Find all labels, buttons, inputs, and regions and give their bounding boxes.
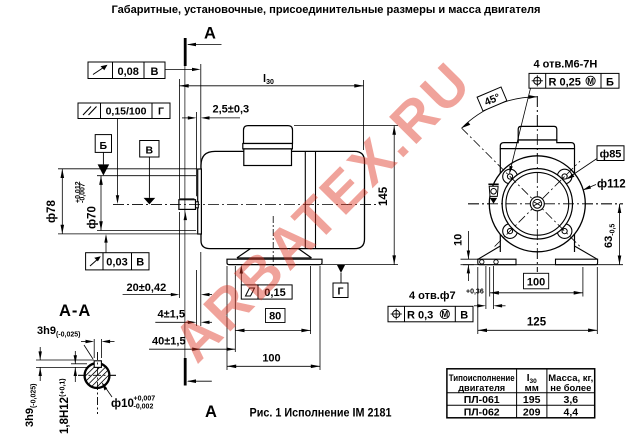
svg-text:ПЛ-062: ПЛ-062	[464, 406, 500, 418]
svg-text:Г: Г	[338, 286, 344, 298]
svg-text:М: М	[587, 77, 594, 86]
svg-text:R 0,3: R 0,3	[407, 310, 433, 322]
svg-text:В: В	[151, 66, 159, 78]
svg-text:Б: Б	[606, 76, 614, 88]
svg-text:Б: Б	[100, 140, 108, 152]
svg-text:20±0,42: 20±0,42	[127, 282, 167, 294]
svg-text:ф85: ф85	[600, 148, 622, 160]
svg-text:ф10: ф10	[111, 398, 134, 410]
svg-text:ПЛ-061: ПЛ-061	[464, 394, 500, 406]
svg-text:В: В	[136, 257, 144, 269]
svg-text:ф78: ф78	[46, 200, 58, 223]
svg-text:+0,007: +0,007	[134, 396, 156, 403]
svg-text:Габаритные, установочные, прис: Габаритные, установочные, присоединитель…	[112, 4, 541, 16]
svg-text:A: A	[205, 403, 217, 421]
svg-text:-0,002: -0,002	[134, 404, 154, 411]
svg-text:3,6: 3,6	[563, 394, 578, 406]
svg-text:125: 125	[527, 317, 547, 329]
svg-text:В: В	[460, 310, 468, 322]
svg-text:4,4: 4,4	[563, 406, 578, 418]
svg-text:ф112: ф112	[597, 179, 626, 191]
svg-text:4 отв.ф7: 4 отв.ф7	[409, 290, 456, 302]
svg-text:В: В	[146, 145, 154, 157]
svg-text:195: 195	[523, 394, 541, 406]
svg-text:0,15/100: 0,15/100	[106, 106, 147, 118]
svg-text:Г: Г	[158, 106, 164, 118]
svg-text:0,03: 0,03	[106, 257, 127, 269]
svg-text:209: 209	[523, 406, 541, 418]
svg-text:R 0,25: R 0,25	[549, 76, 581, 88]
svg-text:A: A	[204, 25, 216, 43]
svg-text:М: М	[441, 310, 448, 319]
svg-text:ф70: ф70	[87, 206, 99, 229]
svg-text:не более: не более	[550, 383, 591, 394]
svg-text:-0,007: -0,007	[80, 183, 87, 203]
svg-text:80: 80	[269, 311, 281, 323]
svg-text:0,08: 0,08	[117, 66, 138, 78]
svg-text:100: 100	[262, 353, 280, 365]
svg-text:двигателя: двигателя	[458, 383, 505, 394]
svg-text:2,5±0,3: 2,5±0,3	[213, 104, 250, 116]
svg-text:A-A: A-A	[59, 302, 91, 320]
svg-text:+0,36: +0,36	[466, 289, 484, 296]
svg-text:4 отв.М6-7Н: 4 отв.М6-7Н	[534, 59, 598, 71]
svg-text:100: 100	[527, 276, 545, 288]
svg-text:Рис. 1 Исполнение IM 2181: Рис. 1 Исполнение IM 2181	[250, 406, 392, 420]
svg-text:мм: мм	[525, 383, 539, 394]
svg-text:10: 10	[453, 234, 465, 246]
